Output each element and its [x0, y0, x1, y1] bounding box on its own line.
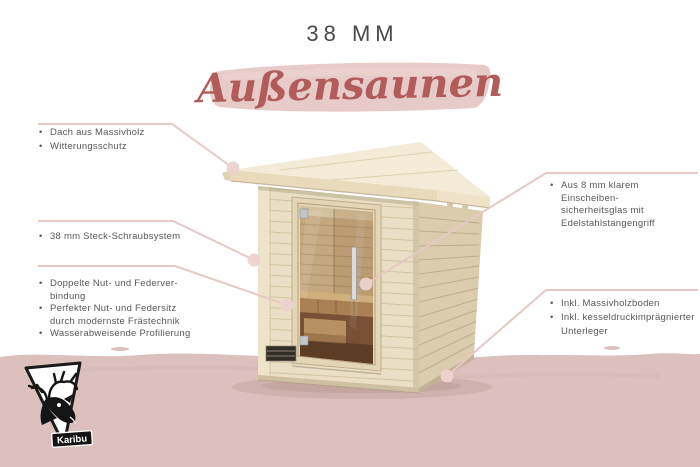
- sauna-illustration: [222, 142, 490, 393]
- feature-item: Dach aus Massivholz: [38, 126, 218, 140]
- door-handle: [351, 247, 358, 300]
- feature-item: 38 mm Steck-Schraubsystem: [38, 230, 228, 244]
- callout-dot-floor: [441, 370, 454, 383]
- callout-door: Aus 8 mm klarem Einscheiben- sicherheits…: [549, 180, 697, 230]
- feature-item: Inkl. kesseldruckimprägnierter Unterlege…: [549, 311, 697, 339]
- promo-image: Karibu 38 MM Außensaunen Dach aus Massiv…: [0, 0, 700, 467]
- callout-dot-system: [248, 254, 261, 267]
- callout-dot-joints: [281, 299, 294, 312]
- feature-item: Aus 8 mm klarem Einscheiben- sicherheits…: [549, 180, 697, 230]
- feature-item: Inkl. Massivholzboden: [549, 297, 697, 311]
- callout-dot-roof: [227, 162, 240, 175]
- door-hinge-bottom: [300, 336, 308, 345]
- callout-roof: Dach aus Massivholz Witterungsschutz: [38, 126, 218, 154]
- door-hinge-top: [300, 209, 308, 218]
- feature-item: Witterungsschutz: [38, 140, 218, 154]
- callout-joints: Doppelte Nut- und Federver- bindung Perf…: [38, 278, 228, 341]
- brand-label: Karibu: [57, 433, 88, 446]
- air-vent: [266, 346, 296, 361]
- feature-item: Perfekter Nut- und Federsitz durch moder…: [38, 303, 228, 328]
- callout-floor: Inkl. Massivholzboden Inkl. kesseldrucki…: [549, 297, 697, 339]
- page-title: Außensaunen: [204, 53, 495, 117]
- callout-system: 38 mm Steck-Schraubsystem: [38, 230, 228, 244]
- size-heading: 38 MM: [0, 21, 700, 47]
- callout-dot-door: [360, 278, 373, 291]
- feature-item: Doppelte Nut- und Federver- bindung: [38, 278, 228, 303]
- feature-item: Wasserabweisende Profilierung: [38, 328, 228, 341]
